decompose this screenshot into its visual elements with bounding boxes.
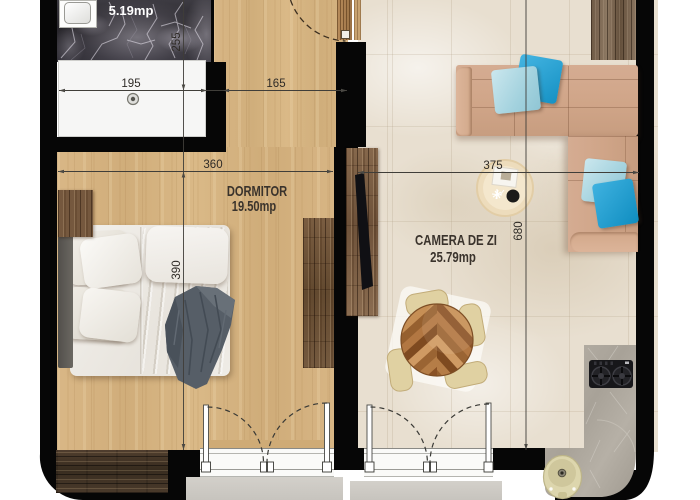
svg-text:375: 375 — [483, 160, 502, 172]
svg-text:680: 680 — [513, 221, 525, 240]
svg-text:165: 165 — [266, 78, 285, 90]
svg-text:255: 255 — [171, 32, 183, 51]
svg-text:195: 195 — [121, 78, 140, 90]
svg-text:360: 360 — [203, 159, 222, 171]
svg-text:390: 390 — [171, 260, 183, 279]
